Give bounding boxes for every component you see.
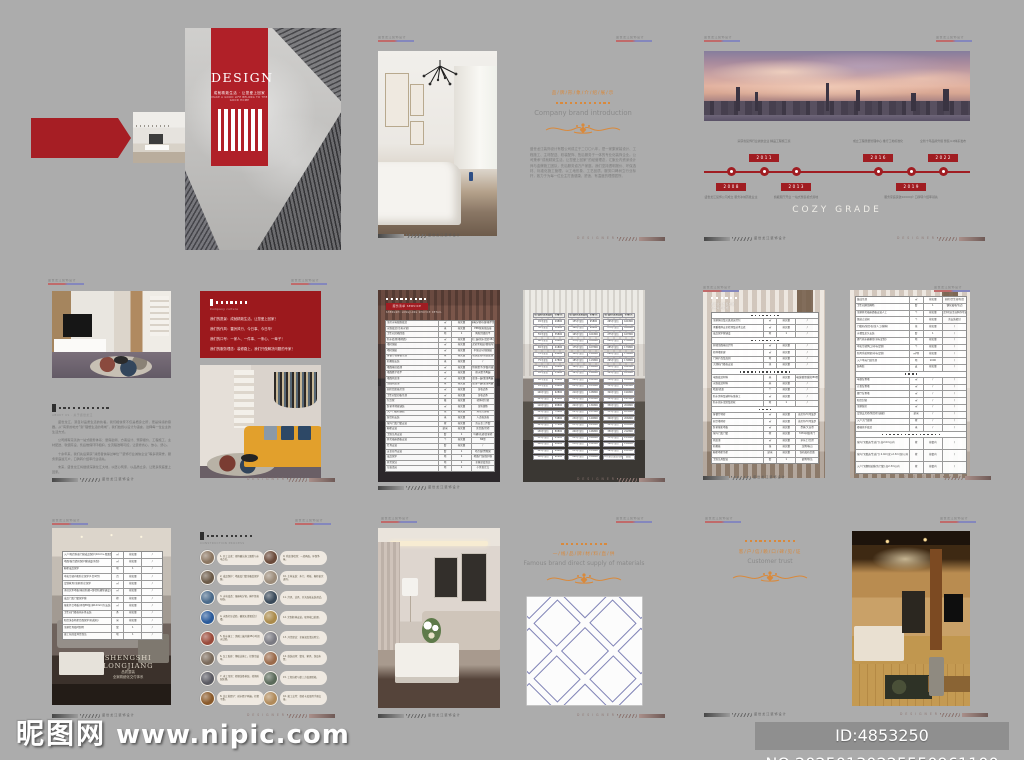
timeline-node xyxy=(760,167,769,176)
process-step: 12. 定制柜体安装，现场收口处理。 xyxy=(263,610,327,626)
materials-page-header: 一/线/品/牌/材/料/直/供 Famous brand direct supp… xyxy=(523,543,645,586)
page-footer-mark: 盛世龙江装饰设计 xyxy=(703,475,786,480)
quote-page-b: 集成吊顶㎡按实量厨房/卫生间/阳台卫生间淋浴隔断套1钢化玻璃/包边全屋开关插座面… xyxy=(850,290,970,478)
brand-intro-paragraph: 盛世龙江装饰设计有限公司成立于二〇〇八年，是一家集家装设计、工程施工、主材配送、… xyxy=(530,147,636,180)
page-header-mark: 盛世龙江装饰设计 xyxy=(616,517,652,523)
tower xyxy=(826,83,829,111)
table-row: 全屋灯具临时照明套1/ xyxy=(63,625,162,632)
page-footer-mark: D E S I G N E R xyxy=(897,236,985,241)
cover-stripes xyxy=(218,109,262,151)
package-row: 145平全包89800255平全包155800365平全包221800 xyxy=(533,449,635,454)
quote-table-a: 全屋拆旧及垃圾清运打包㎡按实量/承重墙体安全检测及技术交底㎡按实量/成品保护膜铺… xyxy=(711,312,819,464)
table-row: 定制家具(全屋)防尘保护㎡按实量/ xyxy=(63,581,162,588)
table-row: 卫生间门槛石挡水条安装条按实量/ xyxy=(63,611,162,618)
page-header-mark: 盛世龙江装饰设计 xyxy=(48,279,84,285)
timeline-label: 荣获省装饰行业诚信企业 精品工程施工奖 xyxy=(728,139,800,143)
process-step: 1. 开工交底：现场确认施工图纸与水电点位。 xyxy=(200,550,264,566)
package-row: 140平全包86800250平全包152800360平全包218800 xyxy=(533,442,635,447)
package-row: 130平全包80800240平全包146800350平全包212800 xyxy=(533,429,635,434)
page-header-mark: 盛世龙江装饰设计 xyxy=(934,286,970,292)
title-block-icon xyxy=(52,404,56,412)
page-footer-mark: D E S I G N E R xyxy=(903,475,991,480)
pillow xyxy=(281,426,294,440)
process-step: 11. 灯具、洁具、开关面板安装调试。 xyxy=(263,590,327,606)
service-tag: 服务清单 SERVICE xyxy=(386,303,428,310)
process-step: 9. 乳胶漆喷涂：一底两面，环保净味。 xyxy=(263,550,327,566)
chair xyxy=(929,657,944,696)
culture-line: 我们的口号：一家人、一件事、一条心、一辈子！ xyxy=(210,336,321,341)
brand-logo-lattice xyxy=(527,597,642,705)
page-dots xyxy=(711,297,737,299)
page-header-mark: 盛世龙江装饰设计 xyxy=(703,286,739,292)
process-step-text: 8. 油工批腻子：耐水腻子两遍，打磨平整。 xyxy=(217,691,264,705)
bedroom-photo xyxy=(852,531,970,706)
process-step-photo xyxy=(263,631,278,646)
process-steps-page: CONSTRUCTION PROCESS 1. 开工交底：现场确认施工图纸与水电… xyxy=(200,528,322,712)
tv-screen xyxy=(944,594,963,622)
wall-frame xyxy=(410,121,424,145)
culture-line: 我们的服务理念：装修路上，我们只做解决问题的专家！ xyxy=(210,346,321,351)
timeline-label: 服务家庭突破10000户 口碑转介绍率领先 xyxy=(875,195,947,199)
tv-screen xyxy=(63,314,93,337)
table-row: 室内门(赠送/生态门) 2.0m(含)-2.3m(含)以内樘按套内/ xyxy=(856,450,966,462)
site-watermark: 昵图网 www.nipic.com xyxy=(16,712,350,752)
wall-frame xyxy=(410,84,424,116)
cover-subtitle: 成就精致生活 · 让您爱上回家 xyxy=(211,90,268,95)
process-step-photo xyxy=(263,610,278,625)
staircase xyxy=(150,296,169,336)
red-arrow-ribbon xyxy=(31,118,131,158)
nipic-logo: 昵图网 xyxy=(16,712,106,752)
tv-screen xyxy=(149,134,163,143)
page-dots xyxy=(386,298,426,300)
table-row: 门槛石/窗台石(含人工/辅料)块按实量/ xyxy=(856,324,966,331)
table-row: 餐厅背景墙㎡// xyxy=(856,391,966,398)
floor-rug xyxy=(885,675,932,700)
page-header-mark: 盛世龙江装饰设计 xyxy=(295,519,331,525)
process-step-photo xyxy=(200,550,215,565)
process-step-text: 5. 防水施工：涂刷三遍并做48小时闭水试验。 xyxy=(217,631,264,645)
process-step-text: 15. 工程自检与第三方监理验收。 xyxy=(280,671,327,685)
page-footer-mark: 盛世龙江装饰设计 xyxy=(704,712,787,717)
process-step-text: 10. 主材安装：木门、地板、橱柜依次进场。 xyxy=(280,571,327,585)
wood-door xyxy=(930,549,942,651)
brand-sub1: 品质整装 xyxy=(121,670,135,674)
tower xyxy=(856,90,860,111)
company-culture-box: Company culture 我们的愿景：成就精致生活，让您爱上回家！ 我们的… xyxy=(200,291,321,358)
page-header-mark: 盛世龙江装饰设计 xyxy=(940,517,976,523)
accent-dots xyxy=(523,543,645,545)
about-paragraph: 公司拥有完善的一站式服务体系：量房勘测、方案设计、预算报价、工程施工、主材配送、… xyxy=(52,438,171,448)
package-row: 80平全包50800190平全包116800300平全包182800 xyxy=(533,365,635,370)
table-row: 集成吊顶㎡按实量厨房/卫生间/阳台 xyxy=(856,297,966,304)
staircase xyxy=(234,370,255,429)
materials-title-en: Famous brand direct supply of materials xyxy=(523,560,645,567)
quote-head-line: 包含项目明细 xyxy=(711,306,729,310)
service-list-page: 服务清单 SERVICE SHENGSHI LONGJIANG SERVICE … xyxy=(378,290,500,482)
coffee-table xyxy=(395,643,458,683)
page-header-mark: 盛世龙江装饰设计 xyxy=(936,36,972,42)
process-step-text: 4. 水路打压试验，确保无渗漏后封槽。 xyxy=(217,611,264,625)
process-step: 7. 木工吊顶：轻钢龙骨基层，转角防裂处理。 xyxy=(200,670,264,686)
process-column: 1. 开工交底：现场确认施工图纸与水电点位。2. 成品保护：地面及门窗全覆盖保护… xyxy=(200,550,264,706)
table-row: 橱柜成品保护项1/ xyxy=(63,567,162,574)
brochure-preview-canvas: DESIGN 成就精致生活 · 让您爱上回家 MAKE A GOOD LIFE … xyxy=(0,0,1024,760)
timeline-node xyxy=(874,167,883,176)
table-row: 入户门(翻新贴膜/含门套) 高2.3m以内樘按套内/ xyxy=(856,462,966,473)
chandelier-icon xyxy=(418,58,462,88)
table-row: 地面/窗台瓷砖保护膜铺设(防刮)㎡按实量/ xyxy=(63,559,162,566)
about-paragraph: 十余年来，我们先后荣获“消费者信得过单位”“装饰行业诚信企业”等多项荣誉，服务家… xyxy=(52,452,171,462)
process-step-photo xyxy=(263,691,278,706)
process-step-text: 13. 开荒保洁：全屋深度清洁除尘。 xyxy=(280,631,327,645)
page-footer-mark: D E S I G N E R xyxy=(577,236,665,241)
table-row: 入户大门更换樘// xyxy=(856,419,966,426)
page-footer-mark: D E S I G N E R xyxy=(577,713,665,718)
table-row: 烟道止逆阀个按实量含安装密封 xyxy=(856,317,966,324)
quote-page-a: 盛世龙江整装套餐 包含项目明细 全屋拆旧及垃圾清运打包㎡按实量/承重墙体安全检测… xyxy=(703,290,825,478)
process-step-photo xyxy=(263,651,278,666)
page-header-mark: 盛世龙江装饰设计 xyxy=(705,517,741,523)
timeline-year: 2008 xyxy=(716,183,746,191)
process-step-photo xyxy=(263,550,278,565)
culture-title-en: Company culture xyxy=(210,308,321,311)
accent-dots xyxy=(703,540,837,542)
wall-art-panel xyxy=(274,372,318,408)
yellow-sofa-photo xyxy=(200,365,321,478)
package-row: 85平全包53800195平全包119800305平全包185800 xyxy=(533,371,635,376)
image-id-badge: ID:4853250 NO:20250130225550961100 xyxy=(755,722,1009,750)
tv-cabinet xyxy=(54,339,105,352)
process-step-text: 16. 竣工交付：保修卡及使用手册交接。 xyxy=(280,691,327,705)
title-dots xyxy=(216,301,247,303)
page-footer-mark: 盛世龙江装饰设计 xyxy=(378,485,461,490)
process-step: 3. 水电改造：强弱电分管，横平竖直布线。 xyxy=(200,590,264,606)
table-row: 卫生间淋浴隔断套1钢化玻璃/包边 xyxy=(856,304,966,311)
table-row: 燃气热水器移位(非标定制)项按实量/ xyxy=(856,338,966,345)
package-row: 135平全包83800245平全包149800355平全包215800 xyxy=(533,436,635,441)
timeline-node xyxy=(727,167,736,176)
balcony-rail xyxy=(136,125,168,127)
table-row: 竣工前深度开荒保洁项1/ xyxy=(63,633,162,639)
package-row: 105平全包65800215平全包131800325平全包197800 xyxy=(533,397,635,402)
timeline-node xyxy=(792,167,801,176)
tower xyxy=(911,93,916,111)
table-row: 阳台封窗㎡// xyxy=(856,398,966,405)
page-footer-mark: D E S I G N E R xyxy=(247,477,335,482)
process-step-text: 6. 瓦工贴砖：薄贴法施工，控制空鼓率。 xyxy=(217,651,264,665)
timeline-year: 2022 xyxy=(928,154,958,162)
process-step-text: 7. 木工吊顶：轻钢龙骨基层，转角防裂处理。 xyxy=(217,671,264,685)
package-row: 115平全包71800225平全包137800335平全包203800 xyxy=(533,410,635,415)
table-row: 卫浴洁具套装套1箭牌/恒洁 xyxy=(712,458,818,463)
process-step: 14. 软装进场：窗帘、家具、饰品布置。 xyxy=(263,650,327,666)
materials-title-cn: 一/线/品/牌/材/料/直/供 xyxy=(523,551,645,557)
timeline-label: 旗舰展厅开业 一站式整装模式落地 xyxy=(760,195,832,199)
brand-wordmark-sub: 品质整装 全案精细化交付体系 xyxy=(88,670,169,680)
protection-list-page: 入户/阳台防盗门窗成品保护(10cm+双面保护膜)㎡按实量/地面/窗台瓷砖保护膜… xyxy=(52,528,171,705)
process-step: 16. 竣工交付：保修卡及使用手册交接。 xyxy=(263,690,327,706)
service-tag-sub: SHENGSHI LONGJIANG SERVICE DETAIL xyxy=(386,311,442,314)
white-sofa xyxy=(378,162,461,225)
culture-line: 我们的作风：雷厉风行、今日事、今日毕！ xyxy=(210,326,321,331)
page-header-mark: 盛世龙江装饰设计 xyxy=(616,36,652,42)
process-step: 2. 成品保护：地面及门窗全覆盖保护膜。 xyxy=(200,570,264,586)
table-row: 水槽及龙头安装套1/ xyxy=(856,331,966,338)
timeline-year: 2013 xyxy=(781,183,811,191)
curtain xyxy=(378,542,400,650)
city-silhouette xyxy=(704,101,970,116)
table-row: 强化复合地板(环保E0级 厚12mm)包安装㎡按实量/ xyxy=(63,603,162,610)
table-row: 阳台洗衣机柜台面保护(石英石)米按实量/ xyxy=(63,618,162,625)
process-step-photo xyxy=(200,631,215,646)
package-row: 55平全包35800165平全包101800275平全包167800 xyxy=(533,332,635,337)
package-row: 95平全包59800205平全包125800315平全包191800 xyxy=(533,384,635,389)
process-step: 15. 工程自检与第三方监理验收。 xyxy=(263,670,327,686)
timeline-node xyxy=(907,167,916,176)
package-row: 110平全包68800220平全包134800330平全包200800 xyxy=(533,403,635,408)
city-skyline-photo xyxy=(704,51,970,121)
pillow xyxy=(298,426,311,440)
process-step: 6. 瓦工贴砖：薄贴法施工，控制空鼓率。 xyxy=(200,650,264,666)
process-step: 5. 防水施工：涂刷三遍并做48小时闭水试验。 xyxy=(200,630,264,646)
pillow xyxy=(264,426,277,440)
brand-intro-title-cn: 品/牌/形/象/介/绍/展/示 xyxy=(517,90,649,96)
package-row: 45平全包29800155平全包95800265平全包161800 xyxy=(533,319,635,324)
title-block-icon xyxy=(210,299,213,306)
page-header-mark: 盛世龙江装饰设计 xyxy=(381,517,417,523)
protection-table: 入户/阳台防盗门窗成品保护(10cm+双面保护膜)㎡按实量/地面/窗台瓷砖保护膜… xyxy=(62,551,163,640)
page-footer-mark: 盛世龙江装饰设计 xyxy=(52,477,135,482)
package-row: 65平全包41800175平全包107800285平全包173800 xyxy=(533,345,635,350)
tv-wall-photo xyxy=(52,291,171,378)
process-step-photo xyxy=(200,590,215,605)
living-room-photo-page xyxy=(378,51,497,236)
quote-table-b: 集成吊顶㎡按实量厨房/卫生间/阳台卫生间淋浴隔断套1钢化玻璃/包边全屋开关插座面… xyxy=(855,296,967,474)
page-header-mark: 盛世龙江装饰设计 xyxy=(291,279,327,285)
accent-dots xyxy=(517,102,649,104)
cover-page: DESIGN 成就精致生活 · 让您爱上回家 MAKE A GOOD LIFE … xyxy=(185,28,341,250)
about-title-marker xyxy=(52,404,109,412)
culture-title-marker xyxy=(210,299,321,306)
process-step: 13. 开荒保洁：全屋深度清洁除尘。 xyxy=(263,630,327,646)
process-step-text: 9. 乳胶漆喷涂：一底两面，环保净味。 xyxy=(280,551,327,565)
river xyxy=(704,115,970,121)
timeline-year: 2016 xyxy=(863,154,893,162)
process-step-photo xyxy=(200,691,215,706)
about-paragraph: 盛世龙江，源自对品质生活的执着。我们相信家不仅是栖身之所，更是情感的容器。从“有… xyxy=(52,420,171,434)
page-footer-mark: D E S I G N E R xyxy=(577,477,665,482)
ceiling-cove-light xyxy=(390,541,488,546)
table-row: 全屋开关插座面板安装人工个按实量不含主材(业主自购亦可安装) xyxy=(856,311,966,318)
timeline-label: 全新十年品牌升级 整装4.0体系发布 xyxy=(907,139,979,143)
bed xyxy=(854,626,904,661)
wall-frame xyxy=(385,73,408,127)
process-step-text: 14. 软装进场：窗帘、家具、饰品布置。 xyxy=(280,651,327,665)
process-step: 8. 油工批腻子：耐水腻子两遍，打磨平整。 xyxy=(200,690,264,706)
cover-red-banner: DESIGN 成就精致生活 · 让您爱上回家 MAKE A GOOD LIFE … xyxy=(211,28,268,166)
process-step: 4. 水路打压试验，确保无渗漏后封槽。 xyxy=(200,610,264,626)
customer-title-en: Customer trust xyxy=(703,558,837,565)
package-row: 150平全包92800260平全包158800370平全包(复式/别墅)面议 xyxy=(533,455,635,460)
diamond-grid xyxy=(527,597,642,705)
package-price-page: 户型/面积(建筑面积)价格/元户型/面积(建筑面积)价格/元户型/面积(建筑面积… xyxy=(523,290,645,482)
table-row: 垃圾清运项1小区指定点 xyxy=(386,466,494,471)
page-footer-mark: D E S I G N E R xyxy=(900,712,988,717)
timeline-label: 成立工程质量管理中心 推行工地标准化 xyxy=(842,139,914,143)
process-step-photo xyxy=(263,570,278,585)
table-row: 沙发背景墙㎡// xyxy=(856,385,966,392)
process-step-photo xyxy=(263,671,278,686)
page-footer-mark: 盛世龙江装饰设计 xyxy=(378,233,461,238)
process-step-photo xyxy=(263,590,278,605)
package-row: 100平全包62800210平全包128800320平全包194800 xyxy=(533,390,635,395)
cover-title: DESIGN xyxy=(211,72,268,85)
page-header-mark: 盛世龙江装饰设计 xyxy=(52,519,88,525)
brand-wordmark: SHENGSHI LONGJIANG xyxy=(88,655,169,670)
process-step-photo xyxy=(200,671,215,686)
timeline-label: 盛世龙江装饰公司成立 服务冰城首批业主 xyxy=(695,195,767,199)
table-row: 结构胶支按实量/ xyxy=(856,365,966,372)
table-row: 入户单元门处吊顶项1000/ xyxy=(856,358,966,365)
page-header-mark: 盛世龙江装饰设计 xyxy=(378,36,414,42)
ribbon-interior-photo xyxy=(133,112,187,163)
customer-title-cn: 客/户/信/赖/口/碑/见/证 xyxy=(703,549,837,555)
title-dots xyxy=(59,407,109,409)
timeline-year: 2019 xyxy=(896,183,926,191)
tv-cabinet xyxy=(145,145,169,150)
blue-vase xyxy=(469,172,473,181)
table-row: 入户/阳台防盗门窗成品保护(10cm+双面保护膜)㎡按实量/ xyxy=(63,552,162,559)
cover-subtitle-en: MAKE A GOOD LIFE BELONG TO THE GOOD HOME xyxy=(211,96,268,102)
flourish-ornament-icon xyxy=(545,571,623,586)
culture-line: 我们的愿景：成就精致生活，让您爱上回家！ xyxy=(210,316,321,321)
process-step-photo xyxy=(200,570,215,585)
package-row: 75平全包47800185平全包113800295平全包179800 xyxy=(533,358,635,363)
timeline-node xyxy=(939,167,948,176)
title-block-icon xyxy=(200,532,204,540)
process-step-text: 1. 开工交底：现场确认施工图纸与水电点位。 xyxy=(217,551,264,565)
table-row: 全屋窗帘㎡// xyxy=(856,405,966,412)
flourish-ornament-icon xyxy=(731,569,809,584)
brand-intro-page: 品/牌/形/象/介/绍/展/示 Company brand introducti… xyxy=(517,90,649,180)
process-step: 10. 主材安装：木门、地板、橱柜依次进场。 xyxy=(263,570,327,586)
process-step-text: 11. 灯具、洁具、开关面板安装调试。 xyxy=(280,591,327,605)
package-row: 户型/面积(建筑面积)价格/元户型/面积(建筑面积)价格/元户型/面积(建筑面积… xyxy=(533,313,635,318)
table-row: 多层实木地板(基层防潮+静音防潮垫铺设)㎡按实量/ xyxy=(63,589,162,596)
page-header-mark: 盛世龙江装饰设计 xyxy=(704,36,740,42)
package-table: 户型/面积(建筑面积)价格/元户型/面积(建筑面积)价格/元户型/面积(建筑面积… xyxy=(533,313,635,460)
package-row: 125平全包77800235平全包143800345平全包209800 xyxy=(533,423,635,428)
process-step-photo xyxy=(200,651,215,666)
page-footer-mark: 盛世龙江装饰设计 xyxy=(378,713,461,718)
nipic-url: www.nipic.com xyxy=(116,720,350,750)
process-step-text: 2. 成品保护：地面及门窗全覆盖保护膜。 xyxy=(217,571,264,585)
brand-sub2: 全案精细化交付体系 xyxy=(113,675,144,679)
process-title-en: CONSTRUCTION PROCESS xyxy=(200,541,245,545)
floor-lamp xyxy=(402,578,418,596)
about-title-en: ABOUT US · 关于盛世龙江 xyxy=(52,413,93,417)
process-column: 9. 乳胶漆喷涂：一底两面，环保净味。10. 主材安装：木门、地板、橱柜依次进场… xyxy=(263,550,327,706)
tower xyxy=(943,89,949,111)
flourish-ornament-icon xyxy=(544,121,622,136)
tower xyxy=(755,92,758,112)
package-row: 50平全包32800160平全包98800270平全包164800 xyxy=(533,326,635,331)
timeline-year: 2011 xyxy=(749,154,779,162)
process-step-text: 12. 定制柜体安装，现场收口处理。 xyxy=(280,611,327,625)
table-row: 定制玄关柜/阳台柜(选配)延米// xyxy=(856,412,966,419)
table-row: 楼梯扶手改造米// xyxy=(856,425,966,432)
table-row: 中央空调风口(非标定制)个按实量/ xyxy=(856,345,966,352)
about-paragraphs: 盛世龙江，源自对品质生活的执着。我们相信家不仅是栖身之所，更是情感的容器。从“有… xyxy=(52,420,171,479)
wall-frame xyxy=(434,557,458,599)
table-row: 成品门及门套保护膜樘按实量/ xyxy=(63,596,162,603)
package-row: 90平全包56800200平全包122800310平全包188800 xyxy=(533,378,635,383)
process-title-marker xyxy=(200,532,252,540)
timeline-line xyxy=(704,171,970,173)
wall-art xyxy=(902,591,926,633)
title-dots xyxy=(207,535,252,537)
about-paragraph: 未来，盛世龙江将继续深耕龙江大地，以匠心筑家，以品质立身，让更多家庭爱上回家。 xyxy=(52,465,171,475)
wall-frame xyxy=(461,553,487,602)
process-step-photo xyxy=(200,610,215,625)
service-table: 全房水电线路改造㎡按实量强弱电分管布线/横平竖直水路改造(冷热水管)米按实量PP… xyxy=(385,320,495,472)
table-row: 新风系统预留(非标定制)㎡/项按实量/ xyxy=(856,351,966,358)
package-row: 70平全包44800180平全包110800290平全包176800 xyxy=(533,352,635,357)
page-footer-mark: 盛世龙江装饰设计 xyxy=(704,236,787,241)
customer-trust-header: 客/户/信/赖/口/碑/见/证 Customer trust xyxy=(703,540,837,584)
tower xyxy=(736,87,740,111)
timeline-caption: COZY GRADE xyxy=(704,205,970,215)
table-row: 电视背景墙㎡// xyxy=(856,378,966,385)
process-step-text: 3. 水电改造：强弱电分管，横平竖直布线。 xyxy=(217,591,264,605)
table-row: 中央空调内机防尘保护(1台/2匹)台按实量/ xyxy=(63,574,162,581)
package-row: 120平全包74800230平全包140800340平全包206800 xyxy=(533,416,635,421)
brand-intro-title-en: Company brand introduction xyxy=(517,109,649,117)
table-row: 室内门(赠送/生态门) 高2.0m以内樘按套内/ xyxy=(856,438,966,450)
package-row: 60平全包38800170平全包104800280平全包170800 xyxy=(533,339,635,344)
living-room-photo-2 xyxy=(378,528,500,708)
